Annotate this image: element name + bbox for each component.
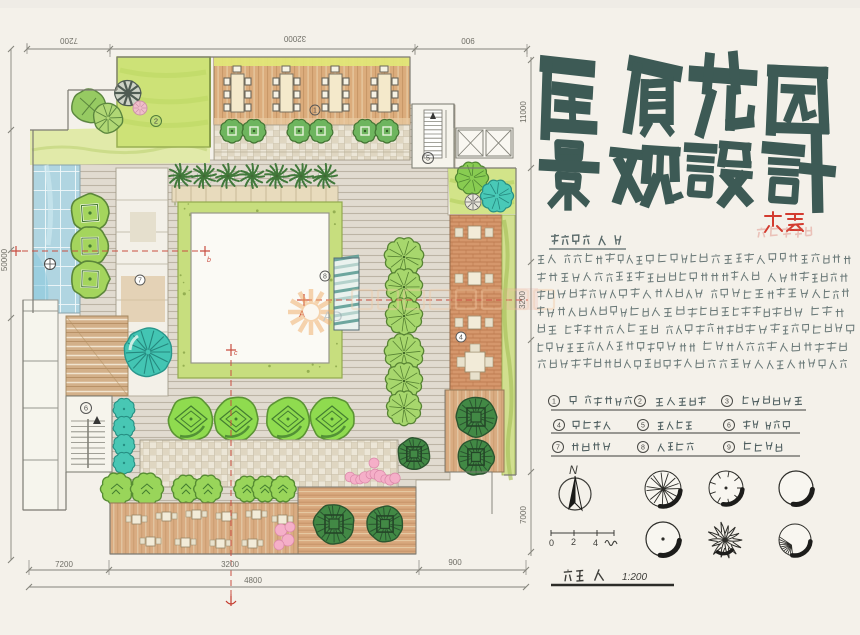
svg-text:11000: 11000	[519, 101, 528, 123]
svg-text:3: 3	[725, 399, 729, 406]
svg-text:4: 4	[593, 538, 598, 548]
svg-text:50000: 50000	[0, 248, 9, 271]
svg-text:7200: 7200	[55, 560, 73, 569]
svg-text:7000: 7000	[519, 506, 528, 524]
svg-text:0: 0	[549, 538, 554, 548]
svg-text:4800: 4800	[244, 576, 262, 585]
svg-text:2: 2	[571, 537, 576, 547]
svg-text:N: N	[569, 463, 578, 477]
svg-text:900: 900	[448, 558, 462, 567]
svg-text:6: 6	[727, 423, 731, 430]
svg-text:7200: 7200	[60, 36, 78, 45]
svg-text:2: 2	[638, 399, 642, 406]
svg-text:3200: 3200	[221, 560, 239, 569]
svg-text:4: 4	[557, 423, 561, 430]
svg-text:1: 1	[552, 399, 556, 406]
svg-text:32000: 32000	[283, 34, 306, 43]
svg-text:3200: 3200	[518, 291, 527, 309]
svg-text:8: 8	[641, 445, 645, 452]
svg-text:5: 5	[641, 423, 645, 430]
svg-text:900: 900	[461, 36, 475, 45]
svg-text:1:200: 1:200	[622, 572, 647, 583]
svg-text:7: 7	[556, 445, 560, 452]
svg-text:9: 9	[727, 445, 731, 452]
